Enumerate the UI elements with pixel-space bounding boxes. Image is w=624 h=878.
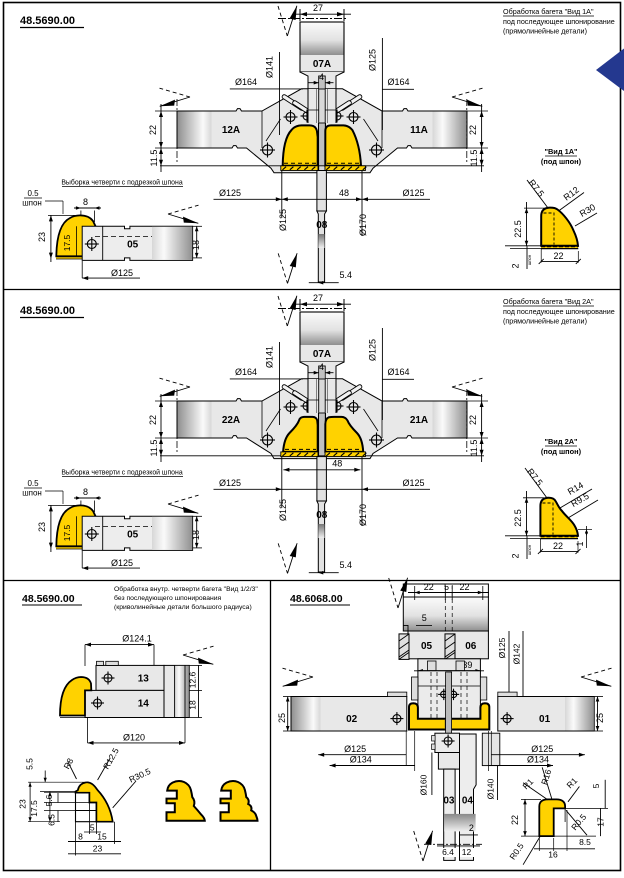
svg-text:Обработка багета "Вид 2А": Обработка багета "Вид 2А" — [503, 297, 594, 306]
svg-text:22: 22 — [468, 125, 478, 135]
svg-text:Ø142: Ø142 — [512, 643, 522, 664]
svg-text:15: 15 — [97, 832, 107, 842]
svg-text:5: 5 — [444, 582, 449, 592]
svg-text:Ø120: Ø120 — [123, 733, 145, 743]
svg-text:шпон: шпон — [527, 544, 532, 555]
svg-text:48.5690.00: 48.5690.00 — [22, 593, 75, 605]
svg-text:22: 22 — [148, 415, 158, 425]
svg-text:шпон: шпон — [527, 254, 532, 265]
svg-text:2: 2 — [511, 553, 521, 558]
svg-text:(криволинейные детали большого: (криволинейные детали большого радиуса) — [114, 603, 252, 611]
svg-text:2: 2 — [469, 823, 474, 833]
svg-text:Ø164: Ø164 — [387, 367, 409, 377]
svg-text:шпон: шпон — [22, 489, 42, 498]
svg-text:22: 22 — [459, 582, 469, 592]
svg-text:Ø125: Ø125 — [368, 49, 378, 71]
svg-text:17.5: 17.5 — [62, 524, 72, 541]
svg-text:Ø124.1: Ø124.1 — [122, 634, 152, 644]
svg-text:8: 8 — [78, 832, 83, 842]
svg-text:шпон: шпон — [22, 199, 42, 208]
svg-text:Ø141: Ø141 — [265, 56, 275, 78]
svg-text:02: 02 — [346, 714, 358, 725]
svg-text:Ø170: Ø170 — [358, 214, 368, 236]
svg-text:Ø125: Ø125 — [402, 478, 424, 488]
svg-text:12A: 12A — [222, 125, 240, 136]
svg-text:0.5: 0.5 — [27, 479, 39, 488]
svg-text:Выборка четверти с подрезкой ш: Выборка четверти с подрезкой шпона — [61, 179, 182, 187]
svg-text:17.5: 17.5 — [62, 234, 72, 251]
svg-text:05: 05 — [127, 240, 139, 251]
svg-text:Ø164: Ø164 — [387, 77, 409, 87]
svg-text:08: 08 — [316, 510, 328, 521]
svg-text:Ø125: Ø125 — [344, 744, 366, 754]
svg-text:Ø140: Ø140 — [486, 778, 496, 799]
svg-text:23: 23 — [93, 844, 103, 854]
svg-text:22: 22 — [553, 251, 563, 261]
svg-text:8: 8 — [83, 197, 88, 207]
svg-text:(под шпон): (под шпон) — [541, 157, 582, 166]
svg-text:22: 22 — [468, 415, 478, 425]
svg-text:Ø125: Ø125 — [531, 744, 553, 754]
svg-text:Ø125: Ø125 — [402, 188, 424, 198]
svg-text:13: 13 — [138, 674, 150, 685]
svg-text:23: 23 — [18, 799, 28, 809]
svg-text:48: 48 — [339, 188, 349, 198]
svg-text:03: 03 — [443, 796, 455, 807]
svg-text:(прямолинейные детали): (прямолинейные детали) — [503, 27, 587, 36]
svg-text:06: 06 — [465, 641, 477, 652]
svg-text:Ø125: Ø125 — [111, 558, 133, 568]
svg-text:5.4: 5.4 — [340, 560, 353, 570]
svg-text:48.6068.00: 48.6068.00 — [290, 593, 343, 605]
svg-text:под последующее шпонирование: под последующее шпонирование — [503, 307, 615, 316]
svg-text:11.5: 11.5 — [469, 440, 479, 457]
svg-text:Ø125: Ø125 — [219, 188, 241, 198]
svg-text:22: 22 — [424, 582, 434, 592]
svg-text:07A: 07A — [313, 349, 331, 360]
svg-text:07A: 07A — [313, 59, 331, 70]
svg-text:22A: 22A — [222, 415, 240, 426]
svg-text:8.5: 8.5 — [579, 837, 591, 847]
svg-text:Ø164: Ø164 — [235, 367, 257, 377]
svg-text:22: 22 — [553, 541, 563, 551]
svg-text:22.5: 22.5 — [513, 509, 523, 527]
svg-text:48.5690.00: 48.5690.00 — [20, 305, 75, 317]
svg-text:05: 05 — [421, 641, 433, 652]
svg-text:22: 22 — [510, 815, 520, 825]
svg-text:5: 5 — [422, 613, 427, 623]
svg-text:48: 48 — [332, 459, 342, 469]
svg-text:Ø134: Ø134 — [350, 755, 372, 765]
svg-text:48.5690.00: 48.5690.00 — [20, 15, 75, 27]
svg-text:0.5: 0.5 — [27, 189, 39, 198]
svg-text:14: 14 — [138, 699, 150, 710]
svg-text:2: 2 — [511, 263, 521, 268]
svg-text:"Вид 2А": "Вид 2А" — [544, 437, 578, 446]
svg-text:Ø160: Ø160 — [419, 774, 429, 795]
svg-text:22.5: 22.5 — [513, 220, 523, 238]
svg-text:5: 5 — [591, 783, 601, 788]
svg-text:"Вид 1А": "Вид 1А" — [544, 147, 578, 156]
svg-text:Обработка внутр. четверти баге: Обработка внутр. четверти багета "Вид 1/… — [114, 585, 258, 593]
svg-text:(прямолинейные детали): (прямолинейные детали) — [503, 317, 587, 326]
svg-text:27: 27 — [313, 293, 323, 303]
svg-text:1: 1 — [575, 541, 585, 546]
svg-text:Ø134: Ø134 — [527, 755, 549, 765]
svg-text:18: 18 — [188, 700, 198, 710]
svg-text:12.6: 12.6 — [188, 671, 198, 688]
svg-text:08: 08 — [316, 220, 328, 231]
svg-text:11A: 11A — [410, 125, 428, 136]
svg-text:23: 23 — [37, 232, 47, 242]
svg-text:Обработка багета "Вид 1А": Обработка багета "Вид 1А" — [503, 7, 594, 16]
svg-text:16: 16 — [548, 850, 558, 860]
svg-text:22: 22 — [148, 125, 158, 135]
svg-text:Ø125: Ø125 — [368, 339, 378, 361]
svg-text:04: 04 — [462, 796, 474, 807]
svg-text:4: 4 — [319, 362, 324, 372]
svg-text:23: 23 — [37, 522, 47, 532]
svg-text:17.5: 17.5 — [29, 800, 39, 817]
svg-text:6.4: 6.4 — [442, 847, 454, 857]
svg-text:12: 12 — [462, 847, 472, 857]
svg-text:5.6: 5.6 — [44, 794, 54, 806]
svg-text:5: 5 — [90, 823, 95, 833]
svg-text:Ø125: Ø125 — [111, 268, 133, 278]
svg-text:27: 27 — [313, 3, 323, 13]
svg-text:01: 01 — [539, 714, 551, 725]
svg-text:21A: 21A — [410, 415, 428, 426]
svg-text:Ø141: Ø141 — [265, 346, 275, 368]
svg-text:5.4: 5.4 — [340, 270, 353, 280]
svg-text:18: 18 — [191, 530, 201, 540]
svg-text:Ø125: Ø125 — [278, 499, 288, 521]
svg-text:Выборка четверти с подрезкой ш: Выборка четверти с подрезкой шпона — [61, 469, 182, 477]
svg-text:без последующего шпонирования: без последующего шпонирования — [114, 594, 222, 602]
svg-text:8: 8 — [83, 487, 88, 497]
svg-text:5.5: 5.5 — [24, 758, 34, 770]
svg-text:(под шпон): (под шпон) — [541, 447, 582, 456]
svg-text:18: 18 — [191, 240, 201, 250]
svg-text:4: 4 — [319, 72, 324, 82]
svg-text:Ø125: Ø125 — [497, 637, 507, 658]
svg-text:под последующее шпонирование: под последующее шпонирование — [503, 17, 615, 26]
svg-text:Ø125: Ø125 — [278, 209, 288, 231]
svg-text:6.5: 6.5 — [47, 814, 57, 826]
svg-text:Ø170: Ø170 — [358, 504, 368, 526]
svg-text:11.5: 11.5 — [149, 150, 159, 167]
svg-text:11.5: 11.5 — [469, 150, 479, 167]
svg-text:05: 05 — [127, 530, 139, 541]
svg-text:25: 25 — [277, 713, 287, 723]
svg-text:11.5: 11.5 — [149, 440, 159, 457]
svg-text:Ø164: Ø164 — [235, 77, 257, 87]
svg-text:25: 25 — [595, 713, 605, 723]
svg-text:Ø125: Ø125 — [219, 478, 241, 488]
